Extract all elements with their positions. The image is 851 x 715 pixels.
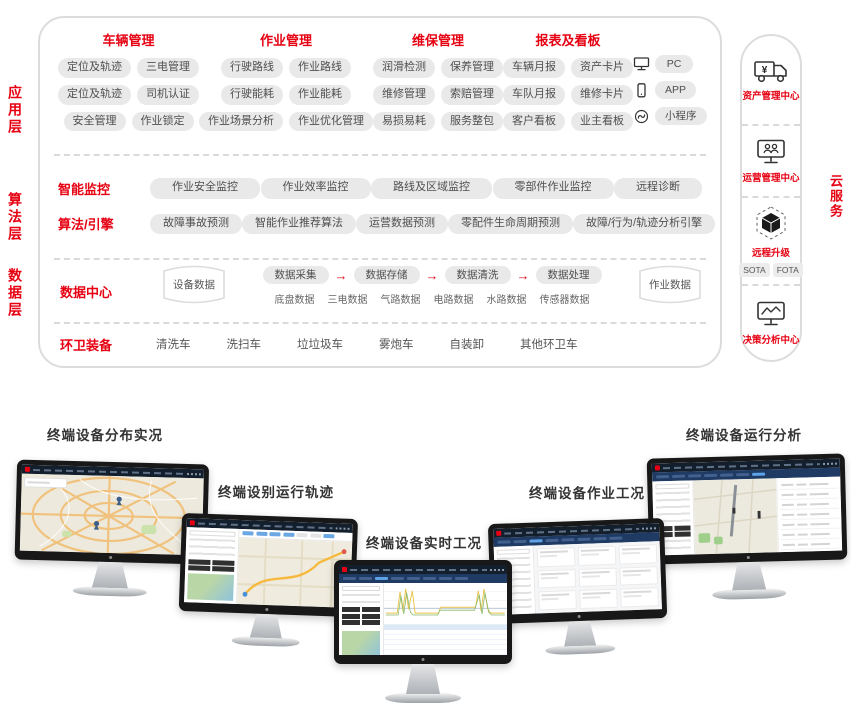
feature-pill: 维修卡片 — [571, 85, 633, 105]
platform-panel: 车辆管理 定位及轨迹 三电管理 定位及轨迹 司机认证 安全管理 作业锁定 作业管… — [38, 16, 722, 368]
monitor-realtime — [334, 560, 512, 703]
monitor-label-analysis: 终端设备运行分析 — [686, 424, 802, 444]
truck-yen-icon: ¥ — [753, 58, 789, 84]
arrow-right-icon: → — [426, 269, 439, 282]
data-center-title: 数据中心 — [60, 282, 146, 301]
equipment-item: 清洗车 — [156, 336, 191, 352]
map-graphic — [694, 478, 779, 554]
data-table — [384, 624, 507, 655]
group-title: 报表及看板 — [535, 30, 600, 49]
equipment-item: 垃垃圾车 — [297, 336, 343, 352]
feature-pill: 客户看板 — [503, 112, 565, 132]
monitor-stand-neck — [731, 562, 766, 591]
equipment-item: 洗扫车 — [227, 336, 262, 352]
monitor-camera-dot — [422, 658, 425, 661]
cloud-item-remote-upgrade: 远程升级 SOTA FOTA — [742, 196, 800, 284]
group-title: 作业管理 — [260, 30, 312, 49]
device-pill: PC — [655, 55, 693, 73]
db-label: 设备数据 — [158, 262, 230, 307]
feature-pill: 车队月报 — [503, 85, 565, 105]
equipment-item: 雾炮车 — [379, 336, 414, 352]
monitor-camera-dot — [578, 615, 581, 618]
feature-pill: 业主看板 — [571, 112, 633, 132]
pipeline-pill: 数据存储 — [354, 266, 420, 284]
monitor-label-distribution: 终端设备分布实况 — [47, 424, 163, 444]
cloud-item-label: 远程升级 — [752, 245, 790, 259]
algo-pill: 零部件作业监控 — [493, 178, 614, 199]
device-data-store: 设备数据 — [158, 262, 230, 307]
signal-chart — [384, 583, 507, 624]
monitor-stand-base — [385, 693, 461, 703]
feature-pill: 安全管理 — [64, 112, 126, 132]
monitor-stand-neck — [92, 562, 129, 589]
cloud-vertical-label: 云服务 — [829, 174, 842, 219]
data-source: 气路数据 — [381, 291, 421, 306]
group-title: 车辆管理 — [102, 30, 154, 49]
feature-pill: 润滑检测 — [373, 58, 435, 78]
feature-pill: 维修管理 — [373, 85, 435, 105]
feature-pill: 保养管理 — [441, 58, 503, 78]
sota-pill: SOTA — [739, 263, 770, 277]
pipeline-pill: 数据清洗 — [445, 266, 511, 284]
equipment-item: 自装卸 — [450, 336, 485, 352]
feature-pill: 作业路线 — [289, 58, 351, 78]
cloud-services-panel: ¥ 资产管理中心 运营管理中心 远程升级 SOTA FOTA — [740, 34, 802, 362]
monitor-label-track: 终端设别运行轨迹 — [218, 481, 334, 501]
feature-pill: 行驶路线 — [221, 58, 283, 78]
algorithm-layer-section: 智能监控 作业安全监控 作业效率监控 路线及区域监控 零部件作业监控 远程诊断 … — [40, 154, 720, 258]
device-app: APP — [633, 81, 707, 99]
algo-row-title: 智能监控 — [58, 179, 150, 198]
page: 应用层 算法层 数据层 车辆管理 定位及轨迹 三电管理 定位及轨迹 司机认证 安… — [0, 0, 851, 715]
algo-pill: 零配件生命周期预测 — [448, 214, 573, 235]
monitor-label-work-status: 终端设备作业工况 — [529, 482, 645, 502]
algo-pill: 故障/行为/轨迹分析引擎 — [573, 214, 715, 235]
layer-label-algorithm: 算法层 — [8, 192, 22, 243]
feature-pill: 定位及轨迹 — [58, 58, 131, 78]
equipment-item: 其他环卫车 — [520, 336, 578, 352]
screen-map-overview — [20, 465, 204, 556]
device-pc: PC — [633, 55, 707, 73]
feature-pill: 作业优化管理 — [289, 112, 373, 132]
group-operation-management: 作业管理 行驶路线 作业路线 行驶能耗 作业能耗 作业场景分析 作业优化管理 — [199, 30, 373, 154]
feature-pill: 服务整包 — [441, 112, 503, 132]
feature-pill: 三电管理 — [137, 58, 199, 78]
screen-realtime — [339, 565, 507, 655]
monitor-bezel — [488, 518, 667, 624]
algo-pill: 作业安全监控 — [150, 178, 260, 199]
algo-row-title: 算法/引擎 — [58, 214, 150, 233]
group-maintenance-management: 维保管理 润滑检测 保养管理 维修管理 索赔管理 易损易耗 服务整包 — [373, 30, 503, 154]
monitor-analysis — [647, 453, 849, 601]
algo-pill: 故障事故预测 — [150, 214, 242, 235]
arrow-right-icon: → — [517, 269, 530, 282]
monitor-work-status — [488, 518, 669, 657]
data-source: 水路数据 — [487, 291, 527, 306]
device-column: PC APP 小程序 — [633, 30, 707, 154]
feature-pill: 作业锁定 — [132, 112, 194, 132]
device-pill: APP — [655, 81, 696, 99]
screen-sidebar — [184, 527, 240, 604]
work-data-store: 作业数据 — [634, 262, 706, 307]
screen-analysis — [652, 459, 842, 556]
application-layer-section: 车辆管理 定位及轨迹 三电管理 定位及轨迹 司机认证 安全管理 作业锁定 作业管… — [40, 18, 720, 154]
monitor-stand-neck — [563, 620, 596, 646]
equipment-title: 环卫装备 — [60, 335, 146, 354]
data-source: 电路数据 — [434, 291, 474, 306]
monitor-chart-icon — [754, 300, 788, 328]
mini-map — [342, 631, 380, 655]
status-card-grid — [533, 541, 661, 613]
screen-track-map — [184, 518, 353, 608]
monitor-label-realtime: 终端设备实时工况 — [366, 532, 482, 552]
db-label: 作业数据 — [634, 262, 706, 307]
algo-pill: 作业效率监控 — [261, 178, 371, 199]
algo-pill: 远程诊断 — [614, 178, 702, 199]
monitor-camera-dot — [747, 556, 750, 559]
layer-label-application: 应用层 — [8, 85, 22, 136]
algo-pill: 运营数据预测 — [356, 214, 448, 235]
pipeline-pill: 数据采集 — [263, 266, 329, 284]
ota-cube-icon — [753, 205, 789, 241]
mini-map — [187, 573, 234, 601]
monitor-stand-neck — [406, 664, 440, 694]
monitor-camera-dot — [109, 556, 112, 559]
cloud-item-label: 决策分析中心 — [743, 332, 800, 346]
monitor-bezel — [334, 560, 512, 664]
feature-pill: 易损易耗 — [373, 112, 435, 132]
feature-pill: 资产卡片 — [571, 58, 633, 78]
cloud-item-label: 运营管理中心 — [743, 170, 800, 184]
feature-pill: 行驶能耗 — [221, 85, 283, 105]
feature-pill: 车辆月报 — [503, 58, 565, 78]
monitor-camera-dot — [265, 608, 268, 611]
cloud-item-operation-center: 运营管理中心 — [742, 124, 800, 196]
group-reports-dashboards: 报表及看板 车辆月报 资产卡片 车队月报 维修卡片 客户看板 业主看板 — [503, 30, 633, 154]
equipment-section: 环卫装备 清洗车 洗扫车 垃垃圾车 雾炮车 自装卸 其他环卫车 — [40, 322, 720, 366]
data-layer-section: 数据中心 设备数据 数据采集 → 数据存储 → 数据清洗 → 数据处理 底盘数据… — [40, 258, 720, 322]
cloud-item-asset-center: ¥ 资产管理中心 — [742, 36, 800, 124]
map-graphic — [20, 474, 204, 556]
feature-pill: 司机认证 — [137, 85, 199, 105]
monitor-bezel — [179, 513, 358, 617]
device-pill: 小程序 — [655, 107, 707, 125]
device-miniprogram: 小程序 — [633, 107, 707, 125]
screen-tabbar — [339, 574, 507, 583]
phone-icon — [633, 83, 650, 98]
screen-work-status — [493, 523, 662, 615]
data-source: 三电数据 — [328, 291, 368, 306]
algo-pill: 路线及区域监控 — [371, 178, 492, 199]
feature-pill: 索赔管理 — [441, 85, 503, 105]
fota-pill: FOTA — [773, 263, 803, 277]
data-source: 底盘数据 — [275, 291, 315, 306]
cloud-item-label: 资产管理中心 — [743, 88, 800, 102]
pipeline-pill: 数据处理 — [536, 266, 602, 284]
group-vehicle-management: 车辆管理 定位及轨迹 三电管理 定位及轨迹 司机认证 安全管理 作业锁定 — [58, 30, 199, 154]
svg-text:¥: ¥ — [762, 65, 768, 76]
pc-icon — [633, 57, 650, 71]
algo-row-engines: 算法/引擎 故障事故预测 智能作业推荐算法 运营数据预测 零配件生命周期预测 故… — [58, 214, 702, 235]
monitor-track — [178, 513, 358, 649]
screen-sidebar — [339, 583, 384, 655]
algo-pill: 智能作业推荐算法 — [242, 214, 356, 235]
cloud-item-decision-center: 决策分析中心 — [742, 284, 800, 360]
analysis-table — [776, 477, 842, 553]
feature-pill: 作业能耗 — [289, 85, 351, 105]
feature-pill: 定位及轨迹 — [58, 85, 131, 105]
monitor-bezel — [647, 453, 848, 564]
layer-label-data: 数据层 — [8, 268, 22, 319]
arrow-right-icon: → — [335, 269, 348, 282]
screen-navbar — [339, 565, 507, 574]
link-icon — [633, 109, 650, 124]
data-source: 传感器数据 — [540, 291, 590, 306]
data-pipeline: 数据采集 → 数据存储 → 数据清洗 → 数据处理 底盘数据 三电数据 气路数据… — [242, 266, 622, 306]
monitor-users-icon — [754, 138, 788, 166]
algo-row-monitoring: 智能监控 作业安全监控 作业效率监控 路线及区域监控 零部件作业监控 远程诊断 — [58, 178, 702, 199]
group-title: 维保管理 — [412, 30, 464, 49]
feature-pill: 作业场景分析 — [199, 112, 283, 132]
monitor-stand-neck — [250, 613, 283, 638]
